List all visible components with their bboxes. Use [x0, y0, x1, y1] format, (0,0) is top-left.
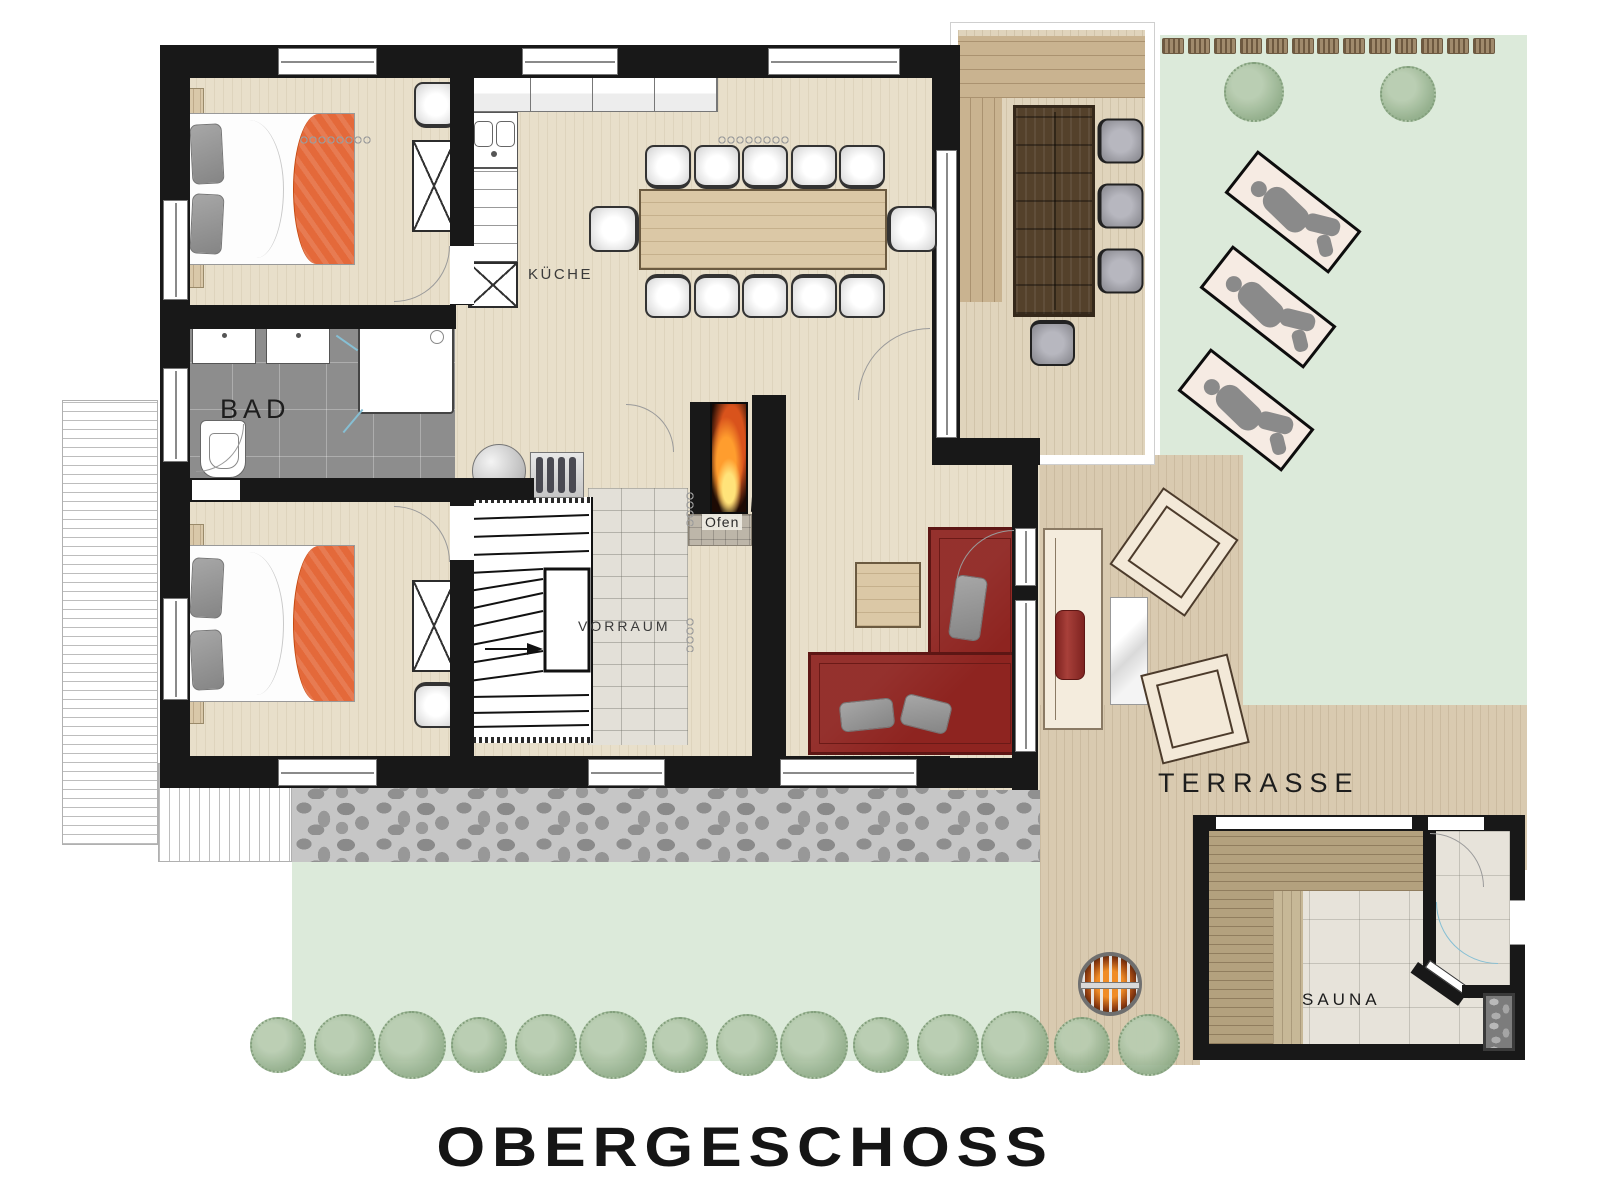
sauna-bench-left	[1209, 891, 1273, 1044]
hedge-block-6	[1292, 38, 1314, 54]
dining-chair-top-2	[694, 145, 740, 189]
kitchen-counter	[468, 168, 518, 262]
window-11	[1015, 528, 1036, 586]
outdoor-chair-1	[1098, 119, 1144, 164]
pergola-wood-beam-top	[958, 36, 1145, 98]
window-10	[936, 150, 957, 438]
sauna-label: SAUNA	[1302, 990, 1381, 1010]
window-8	[588, 759, 665, 786]
window-6	[163, 598, 188, 700]
outdoor-chair-3	[1098, 249, 1144, 294]
radiator-hall-1	[686, 492, 695, 526]
vorraum-tile-floor	[588, 488, 688, 745]
bath-sink-2	[266, 328, 330, 364]
dining-chair-top-4	[791, 145, 837, 189]
bush-6	[579, 1011, 647, 1079]
terrace-heater	[1055, 610, 1085, 680]
sauna-stone-heater	[1483, 993, 1515, 1051]
window-1	[278, 48, 377, 75]
bush-8	[716, 1014, 778, 1076]
dining-chair-bottom-5	[839, 274, 885, 318]
bush-1	[250, 1017, 306, 1073]
window-3	[768, 48, 900, 75]
terrace-side-table	[1110, 597, 1148, 705]
bed2-pillow-2	[189, 629, 224, 691]
bed2-pillow-1	[189, 557, 224, 619]
wall-segment-8	[190, 305, 456, 329]
shower-drain	[430, 330, 444, 344]
kitchen-sink-unit	[468, 112, 518, 168]
window-7	[278, 759, 377, 786]
radiator-dining	[718, 136, 790, 145]
dining-chair-left	[589, 206, 639, 252]
sauna-side-door	[1510, 900, 1525, 945]
kitchen-label: KÜCHE	[528, 266, 593, 283]
hedge-block-5	[1266, 38, 1288, 54]
hedge-block-11	[1421, 38, 1443, 54]
bush-4	[451, 1017, 507, 1073]
door-opening-3	[192, 480, 240, 500]
bush-11	[917, 1014, 979, 1076]
bush-7	[652, 1017, 708, 1073]
bed2-blanket	[293, 546, 354, 701]
lawn-tree-1	[1224, 62, 1284, 122]
stair-edge-bottom	[467, 737, 591, 743]
coffee-table	[855, 562, 921, 628]
sofa-pillow-2	[839, 697, 896, 732]
bbq-grill	[1078, 952, 1142, 1016]
bush-3	[378, 1011, 446, 1079]
person-silhouette	[1315, 233, 1334, 258]
hedge-block-12	[1447, 38, 1469, 54]
bush-13	[1054, 1017, 1110, 1073]
window-2	[522, 48, 618, 75]
stove-fire	[710, 402, 748, 514]
lawn-right	[1243, 466, 1527, 708]
dining-chair-top-3	[742, 145, 788, 189]
bush-9	[780, 1011, 848, 1079]
bush-2	[314, 1014, 376, 1076]
hedge-block-4	[1240, 38, 1262, 54]
hedge-block-1	[1162, 38, 1184, 54]
wall-segment-7	[940, 758, 1038, 788]
dining-chair-top-1	[645, 145, 691, 189]
person-silhouette	[1290, 328, 1309, 353]
dining-chair-bottom-1	[645, 274, 691, 318]
pergola-wood-beam-left	[958, 98, 1002, 302]
hedge-block-7	[1317, 38, 1339, 54]
shower	[358, 320, 454, 414]
bed1-pillow-1	[189, 123, 224, 185]
kitchen-basin-1	[474, 121, 493, 147]
bush-10	[853, 1017, 909, 1073]
kitchen-basin-2	[496, 121, 515, 147]
lawn-tree-2	[1380, 66, 1436, 122]
kitchen-faucet	[491, 151, 497, 157]
dining-chair-bottom-2	[694, 274, 740, 318]
bath-label: BAD	[220, 394, 291, 425]
person-silhouette	[1268, 431, 1287, 456]
exterior-stairs-west	[62, 400, 158, 845]
dining-chair-right	[887, 206, 937, 252]
window-12	[1015, 600, 1036, 752]
bed2	[183, 545, 355, 702]
hedge-block-9	[1369, 38, 1391, 54]
dining-chair-bottom-3	[742, 274, 788, 318]
stove-label: Ofen	[702, 514, 742, 530]
wall-segment-12	[440, 478, 534, 500]
radiator-bed1	[300, 136, 372, 145]
wall-segment-13	[752, 395, 786, 760]
sauna-bench-step	[1273, 891, 1303, 1044]
sauna-bench-top	[1209, 831, 1431, 891]
door-opening-1	[450, 246, 474, 304]
bush-12	[981, 1011, 1049, 1079]
dining-chair-top-5	[839, 145, 885, 189]
vestibule-label: VORRAUM	[578, 618, 671, 634]
kitchen-base-cabinet	[468, 262, 518, 308]
bed1-pillow-2	[189, 193, 224, 255]
outdoor-chair-2	[1098, 184, 1144, 229]
plan-title: OBERGESCHOSS	[325, 1114, 1165, 1179]
window-4	[163, 200, 188, 300]
bush-14	[1118, 1014, 1180, 1076]
outdoor-dining-table	[1013, 105, 1095, 317]
bath-sink-1	[192, 328, 256, 364]
hedge-block-8	[1343, 38, 1365, 54]
dining-table	[639, 189, 887, 270]
hedge-block-10	[1395, 38, 1417, 54]
sauna-window-top	[1216, 817, 1412, 829]
hedge-block-13	[1473, 38, 1495, 54]
window-5	[163, 368, 188, 462]
bush-5	[515, 1014, 577, 1076]
bottle-crate	[530, 452, 584, 498]
staircase	[465, 497, 593, 743]
outdoor-chair-4	[1030, 320, 1075, 366]
hedge-block-2	[1188, 38, 1210, 54]
sauna-entry-opening	[1428, 817, 1484, 830]
radiator-hall-2	[686, 618, 695, 652]
terrace-label: TERRASSE	[1158, 768, 1360, 799]
door-opening-2	[450, 506, 474, 560]
dining-chair-bottom-4	[791, 274, 837, 318]
window-9	[780, 759, 917, 786]
floor-plan-obergeschoss: KÜCHE BAD VORRAUM Ofen TERRASSE SAUNA OB…	[0, 0, 1600, 1194]
hedge-block-3	[1214, 38, 1236, 54]
